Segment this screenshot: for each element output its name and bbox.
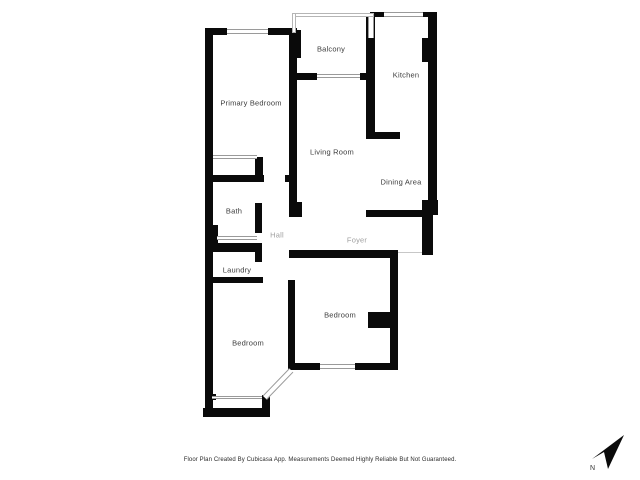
- window: [384, 12, 423, 17]
- wall-segment: [289, 202, 302, 217]
- room-label-primary-bedroom: Primary Bedroom: [220, 99, 281, 108]
- window: [368, 15, 374, 38]
- wall-segment: [422, 38, 430, 62]
- wall-segment: [203, 408, 270, 417]
- wall-segment: [208, 277, 263, 283]
- window-diagonal: [263, 368, 294, 400]
- wall-segment: [205, 28, 213, 417]
- window: [320, 364, 355, 369]
- wall-segment: [390, 253, 398, 370]
- room-label-living-room: Living Room: [310, 148, 354, 157]
- wall-segment: [205, 175, 264, 182]
- wall-segment: [289, 250, 398, 258]
- room-label-foyer: Foyer: [347, 236, 367, 245]
- wall-segment: [288, 280, 295, 370]
- entry-opening: [398, 252, 422, 253]
- wall-segment: [255, 243, 262, 262]
- wall-segment: [255, 203, 262, 233]
- wall-segment: [289, 30, 297, 217]
- closet-door: [213, 155, 257, 159]
- north-label: N: [590, 465, 595, 472]
- room-label-dining-area: Dining Area: [381, 178, 422, 187]
- bay-threshold: [212, 396, 262, 399]
- wall-segment: [422, 215, 433, 255]
- wall-segment: [205, 28, 227, 35]
- glass-partition: [217, 236, 257, 240]
- disclaimer-text: Floor Plan Created By Cubicasa App. Meas…: [0, 457, 640, 463]
- wall-segment: [205, 225, 218, 243]
- wall-segment: [205, 243, 258, 252]
- north-arrow-icon: N: [585, 431, 629, 475]
- wall-segment: [366, 210, 422, 217]
- room-label-laundry: Laundry: [223, 266, 252, 275]
- room-label-bath: Bath: [226, 207, 242, 216]
- balcony-railing: [292, 13, 296, 33]
- room-label-bedroom-left: Bedroom: [232, 339, 264, 348]
- room-label-bedroom-right: Bedroom: [324, 311, 356, 320]
- room-label-hall: Hall: [270, 231, 284, 240]
- window: [227, 29, 268, 34]
- wall-segment: [289, 73, 317, 80]
- floor-plan-canvas: Primary Bedroom Balcony Kitchen Living R…: [0, 0, 640, 480]
- balcony-railing: [292, 13, 374, 17]
- wall-segment: [285, 175, 297, 182]
- room-label-balcony: Balcony: [317, 45, 345, 54]
- room-label-kitchen: Kitchen: [393, 71, 419, 80]
- wall-segment: [422, 200, 438, 215]
- wall-segment: [366, 132, 400, 139]
- wall-segment: [355, 363, 398, 370]
- sliding-door: [317, 74, 360, 78]
- wall-segment: [368, 312, 390, 328]
